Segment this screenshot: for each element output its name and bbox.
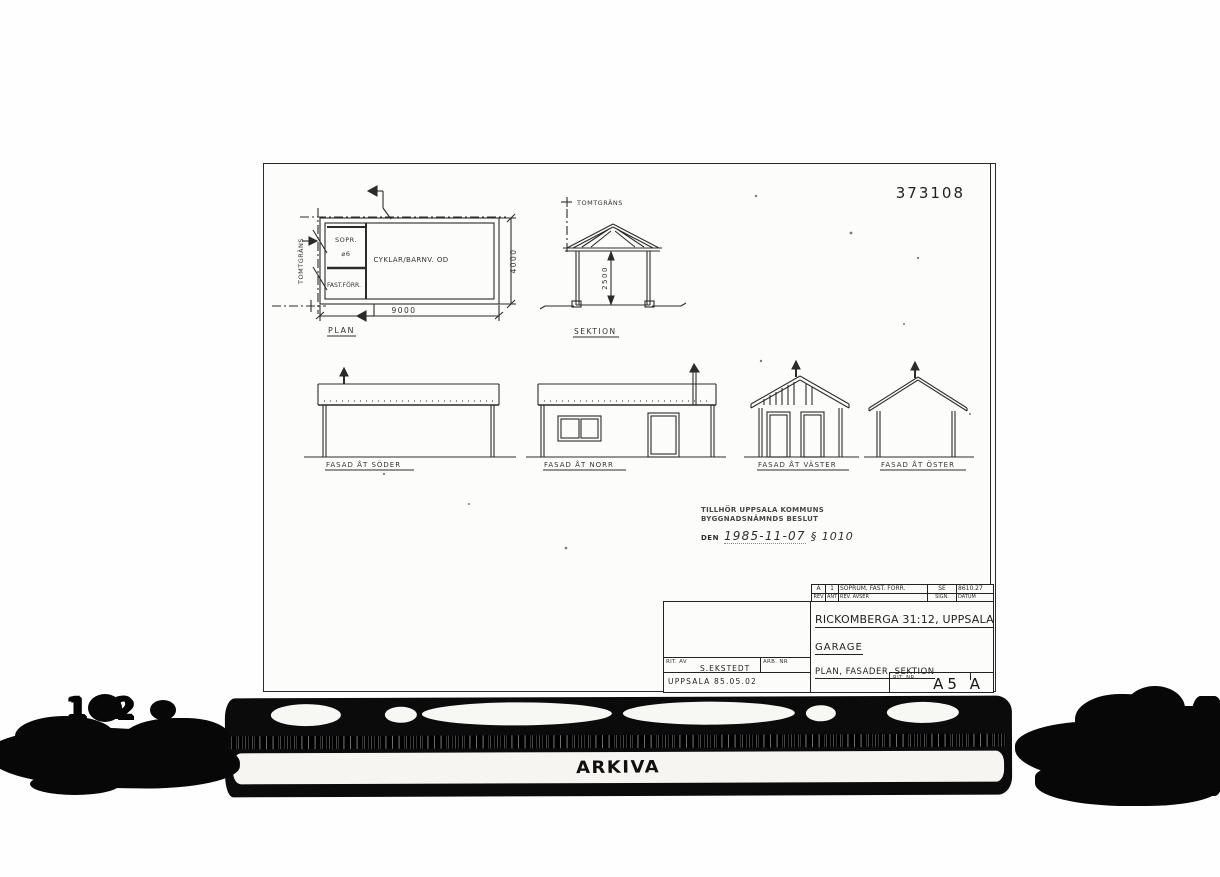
film-hole	[623, 701, 795, 725]
title-block-divider	[810, 602, 811, 692]
stamp-prefix: DEN	[701, 534, 719, 542]
facade-west: FASAD ÅT VÄSTER	[744, 361, 859, 470]
approval-stamp: TILLHÖR UPPSALA KOMMUNS BYGGNADSNÄMNDS B…	[701, 506, 854, 544]
plan-room-soprum-line2: ⌀6	[341, 250, 350, 258]
drawn-by-row: RIT. AV S.EKSTEDT ARB. NR	[664, 657, 810, 673]
title-block: RICKOMBERGA 31:12, UPPSALA GARAGE PLAN, …	[663, 601, 994, 693]
entry-arrow-bottom-icon	[357, 304, 374, 321]
entry-arrow-top-icon	[368, 186, 391, 219]
plan-boundary-label: TOMTGRÄNS	[296, 238, 305, 285]
revision-description: SOPRUM, FAST. FÖRR.	[838, 585, 927, 593]
drawing-number-label: RIT. NR.	[893, 675, 917, 681]
revision-table: A 1 SOPRUM, FAST. FÖRR. SE 8610.27 REV A…	[811, 584, 994, 602]
plan-label: PLAN	[328, 326, 355, 335]
drawn-by-label: RIT. AV	[666, 659, 687, 665]
film-texture-band	[231, 734, 1006, 750]
plan-room-main: CYKLAR/BARNV. OD	[373, 256, 448, 264]
facade-north: FASAD ÅT NORR	[526, 364, 726, 470]
stamp-line-1: TILLHÖR UPPSALA KOMMUNS	[701, 506, 854, 515]
ink-blob	[88, 694, 122, 722]
drawing-number-tick	[970, 673, 971, 680]
ink-blob	[30, 773, 120, 795]
drawing-sheet: 373108	[263, 163, 996, 692]
revision-letter: A	[812, 585, 825, 593]
vent-arrow-icon	[911, 362, 919, 378]
scanned-archive-page: 373108	[0, 0, 1220, 877]
section-boundary-label: TOMTGRÄNS	[576, 198, 623, 207]
section-dim-height: 2500	[601, 266, 609, 290]
film-hole	[271, 704, 341, 726]
film-hole	[385, 707, 417, 723]
job-number-label: ARB. NR	[763, 659, 788, 665]
vent-arrow-icon	[340, 368, 348, 384]
revision-count: 1	[825, 585, 838, 593]
plan-room-forrad: FAST.FÖRR.	[327, 282, 361, 289]
plan-dim-height: 4000	[509, 248, 518, 273]
stamp-paragraph-number: § 1010	[811, 530, 854, 543]
job-number-cell: ARB. NR	[760, 658, 810, 672]
facade-west-label: FASAD ÅT VÄSTER	[758, 460, 837, 469]
section-label: SEKTION	[574, 327, 617, 336]
building-title: GARAGE	[815, 642, 863, 655]
facade-south-label: FASAD ÅT SÖDER	[326, 460, 401, 469]
vent-arrow-icon	[792, 361, 800, 377]
facade-east-label: FASAD ÅT ÖSTER	[881, 460, 955, 469]
plan-dim-width: 9000	[391, 306, 416, 315]
facade-east: FASAD ÅT ÖSTER	[864, 362, 974, 470]
film-hole	[887, 702, 959, 723]
scan-specks	[383, 195, 971, 550]
facade-north-label: FASAD ÅT NORR	[544, 460, 614, 469]
plan-view: 9000 4000 SOPR. ⌀6 FAST.FÖRR. CYKLAR/BAR…	[272, 186, 518, 336]
ink-blob	[150, 700, 176, 720]
revision-date: 8610.27	[956, 585, 993, 593]
arkiva-brand: ARKIVA	[576, 757, 660, 778]
scanner-strip: ARKIVA 142	[0, 686, 1220, 877]
film-band: ARKIVA	[225, 696, 1012, 798]
plan-room-soprum-line1: SOPR.	[335, 236, 357, 244]
place-date: UPPSALA 85.05.02	[668, 677, 757, 686]
drawn-by-name: S.EKSTEDT	[700, 664, 750, 673]
project-title: RICKOMBERGA 31:12, UPPSALA	[815, 613, 994, 628]
revision-sign: SE	[927, 585, 956, 593]
ink-blob	[1190, 696, 1220, 796]
stamp-line-2: BYGGNADSNÄMNDS BESLUT	[701, 515, 854, 524]
facade-south: FASAD ÅT SÖDER	[304, 368, 516, 470]
section-view: TOMTGRÄNS	[540, 197, 686, 337]
ink-blot-right	[1005, 686, 1220, 811]
film-hole	[422, 702, 612, 726]
film-hole	[806, 705, 836, 721]
film-label-band: ARKIVA	[233, 751, 1004, 785]
ink-blot-left: 142	[0, 688, 245, 803]
stamp-date: 1985-11-07	[724, 529, 806, 544]
